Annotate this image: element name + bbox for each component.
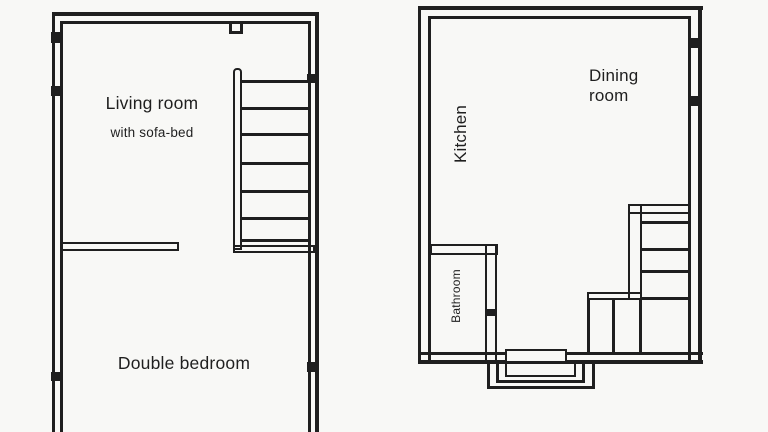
wall-pier (51, 372, 63, 381)
wall-pier (51, 32, 63, 43)
wall-left-outer (52, 12, 55, 432)
wall-pier (688, 96, 702, 106)
stair-rail (233, 68, 242, 250)
stair-tread (642, 221, 688, 224)
floor-plan-canvas: Living room with sofa-bed Double bedroom (0, 0, 768, 432)
living-room-sublabel: with sofa-bed (72, 125, 232, 141)
wall-pier (51, 86, 63, 96)
living-room-label: Living room (72, 93, 232, 113)
wall-pier (307, 362, 319, 372)
wall-top-outer (52, 12, 318, 16)
bathroom-label: Bathroom (450, 269, 464, 323)
stair-tread (242, 107, 308, 110)
double-bedroom-label: Double bedroom (94, 353, 274, 373)
bathroom-wall-right (485, 244, 497, 364)
stair-rail (628, 204, 642, 300)
stair-tread (642, 270, 688, 273)
wall-left-inner (428, 16, 431, 364)
dining-room-label: Dining room (589, 66, 653, 105)
wall-right-outer (698, 6, 702, 364)
stair-tread (242, 80, 308, 83)
door-bracket (229, 22, 243, 34)
stair-tread (642, 248, 688, 251)
porch-step-inner (505, 363, 576, 377)
stair-tread (642, 297, 688, 300)
stair-tread (242, 162, 308, 165)
partition-wall (62, 242, 179, 251)
stair-landing-divider (612, 298, 615, 354)
wall-pier (688, 38, 702, 48)
wall-top-inner (428, 16, 691, 19)
stair-tread (242, 133, 308, 136)
bathroom-wall-pier (485, 309, 497, 316)
door-threshold (505, 349, 567, 363)
kitchen-label: Kitchen (451, 105, 471, 163)
wall-left-outer (418, 6, 421, 364)
wall-pier (307, 74, 319, 83)
wall-right-inner (688, 16, 691, 364)
wall-top-outer (418, 6, 703, 10)
stair-tread (242, 239, 308, 242)
stair-landing-divider (639, 298, 642, 354)
stair-tread (242, 217, 308, 220)
stair-tread (242, 190, 308, 193)
stair-landing-divider (587, 298, 590, 354)
wall-top-inner (60, 21, 310, 24)
wall-left-inner (60, 21, 63, 432)
stair-base (233, 245, 315, 253)
